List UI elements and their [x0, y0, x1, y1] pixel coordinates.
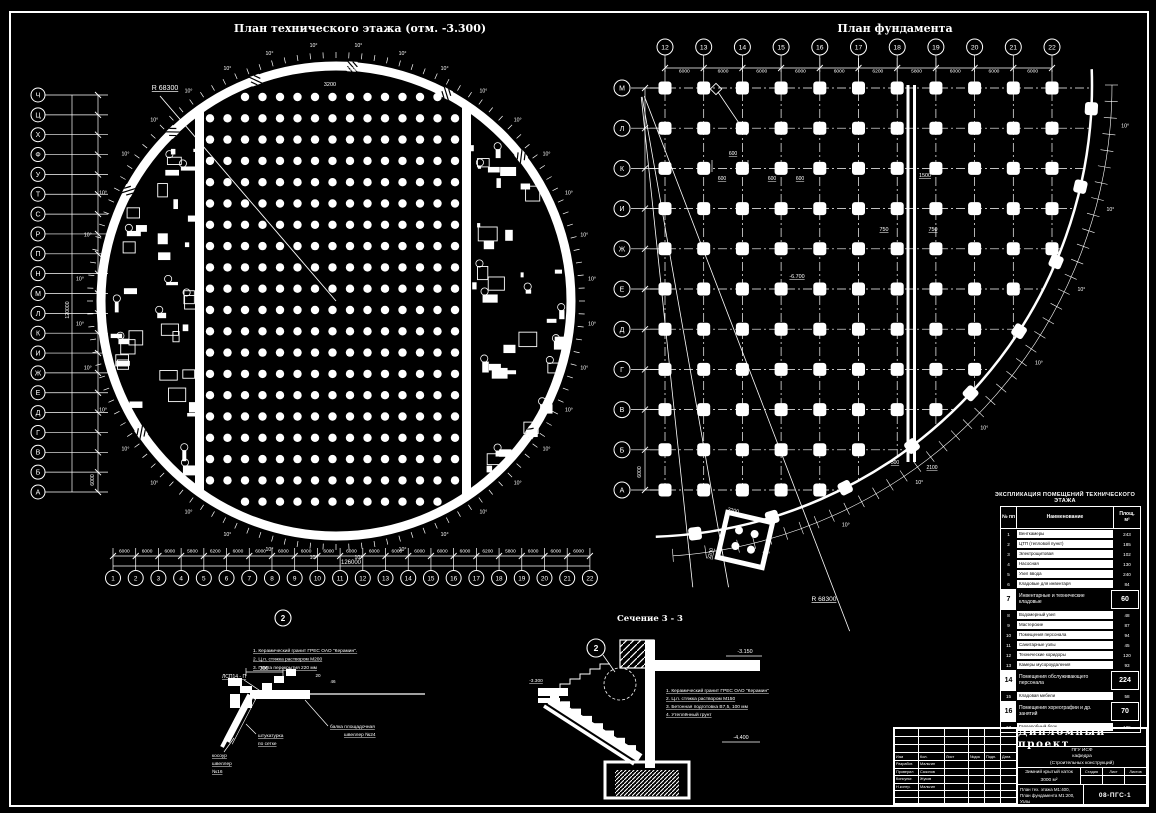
tb-sign-cell [969, 784, 985, 792]
svg-text:Ж: Ж [35, 370, 42, 377]
spec-row-2: 2ЦТП (тепловой пункт)185 [1001, 539, 1140, 549]
spec-row-12: 12Технические коридоры120 [1001, 650, 1140, 660]
pile-cap-detail [717, 512, 772, 567]
svg-text:10°: 10° [185, 88, 193, 94]
svg-text:12: 12 [661, 45, 669, 52]
tb-sign-cell [945, 737, 969, 745]
tb-sign-cell: Подп. [985, 753, 1001, 761]
stage-col: Стадия [1081, 768, 1103, 775]
svg-text:600: 600 [768, 176, 777, 182]
svg-text:19: 19 [518, 576, 526, 583]
tb-sign-cell [969, 761, 985, 769]
svg-text:5: 5 [202, 576, 206, 583]
tb-sign-cell: Лист [945, 753, 969, 761]
svg-text:10°: 10° [588, 277, 596, 283]
svg-text:10°: 10° [479, 88, 487, 94]
spec-row-16: 16Помещения хореографии и др. занятий70 [1001, 701, 1140, 722]
svg-text:10°: 10° [76, 277, 84, 283]
tb-sign-cell [969, 737, 985, 745]
spec-row-6: 6Кладовые для инвентаря84 [1001, 579, 1140, 589]
svg-text:R 68300: R 68300 [812, 596, 837, 603]
svg-text:Г: Г [620, 367, 624, 374]
svg-text:Р: Р [36, 231, 41, 238]
svg-text:3200: 3200 [346, 67, 358, 73]
node-detail-2: 1. Керамический гранит ГРЕС ОАО "Керамин… [212, 647, 425, 775]
svg-text:20: 20 [971, 45, 979, 52]
svg-text:2: 2 [134, 576, 138, 583]
svg-text:10°: 10° [543, 446, 551, 452]
svg-text:6000: 6000 [756, 69, 767, 75]
svg-text:6000: 6000 [392, 549, 403, 555]
tb-sign-cell: Н.контр. [895, 784, 919, 792]
svg-text:5800: 5800 [187, 549, 198, 555]
spec-col-name: Наименование [1017, 507, 1114, 528]
svg-text:10°: 10° [354, 43, 362, 49]
tb-sign-cell [895, 745, 919, 753]
svg-text:7: 7 [247, 576, 251, 583]
svg-text:18: 18 [496, 576, 504, 583]
svg-text:10°: 10° [479, 510, 487, 516]
left-plan-rooms [111, 143, 569, 476]
svg-text:17: 17 [855, 45, 863, 52]
svg-text:10°: 10° [565, 408, 573, 414]
tb-sign-cell: Мальгин [919, 784, 945, 792]
svg-text:Е: Е [36, 390, 41, 397]
svg-text:10°: 10° [514, 481, 522, 487]
svg-text:10°: 10° [150, 481, 158, 487]
spec-row-14: 14Помещения обслуживающего персонала224 [1001, 670, 1140, 691]
tb-sign-cell: Разработ. [895, 761, 919, 769]
svg-text:швеллер: швеллер [212, 762, 232, 767]
tb-sign-cell [919, 737, 945, 745]
tb-sign-cell [969, 729, 985, 737]
svg-text:20: 20 [315, 673, 321, 678]
svg-text:2. Ц.п. стяжка раствором М150: 2. Ц.п. стяжка раствором М150 [666, 696, 735, 702]
svg-text:10°: 10° [223, 66, 231, 72]
svg-text:10°: 10° [842, 522, 850, 528]
svg-text:10°: 10° [122, 446, 130, 452]
spec-table: № пп Наименование Площ. м² 1Венткамеры24… [1000, 506, 1141, 733]
svg-text:10°: 10° [514, 117, 522, 123]
svg-text:Д: Д [620, 327, 625, 334]
svg-text:6000: 6000 [834, 69, 845, 75]
tb-sign-cell [985, 769, 1001, 777]
svg-text:Ж: Ж [619, 246, 626, 253]
svg-text:10: 10 [314, 576, 322, 583]
spec-row-10: 10Помещения персонала94 [1001, 630, 1140, 640]
tb-sign-cell [1001, 729, 1017, 737]
spec-table-rows: 1Венткамеры2432ЦТП (тепловой пункт)1853Э… [1001, 529, 1140, 732]
svg-text:500: 500 [891, 460, 900, 466]
svg-text:10°: 10° [150, 117, 158, 123]
svg-text:20: 20 [541, 576, 549, 583]
svg-text:Л: Л [620, 126, 625, 133]
svg-text:3200: 3200 [707, 547, 715, 560]
svg-text:13: 13 [382, 576, 390, 583]
tb-sign-cell [985, 729, 1001, 737]
right-plan-row-axes: МЛКИЖЕДГВБА6000 [614, 80, 660, 498]
svg-text:6200: 6200 [482, 549, 493, 555]
svg-text:6000: 6000 [119, 549, 130, 555]
object-name: Зимний крытый каток3000 м² [1018, 768, 1081, 783]
svg-text:10°: 10° [1035, 360, 1043, 366]
svg-text:10°: 10° [310, 43, 318, 49]
tb-sign-cell: Консульт. [895, 776, 919, 784]
svg-text:6000: 6000 [164, 549, 175, 555]
svg-text:Ч: Ч [36, 92, 41, 99]
svg-text:6000: 6000 [323, 549, 334, 555]
svg-text:R 68300: R 68300 [152, 85, 179, 92]
spec-row-9: 9Мастерские87 [1001, 620, 1140, 630]
svg-text:6000: 6000 [989, 69, 1000, 75]
tb-sign-cell [1001, 761, 1017, 769]
svg-text:-3.150: -3.150 [737, 649, 752, 655]
svg-text:10°: 10° [399, 51, 407, 57]
spec-row-11: 11Санитарные узлы45 [1001, 640, 1140, 650]
left-plan-column-dots [206, 93, 459, 506]
svg-text:10°: 10° [565, 190, 573, 196]
tb-sign-cell [945, 745, 969, 753]
tb-sign-cell [1001, 769, 1017, 777]
tb-sign-cell: Сазонов [919, 769, 945, 777]
svg-text:46: 46 [330, 679, 336, 684]
tb-sign-cell [945, 798, 969, 805]
svg-text:2: 2 [281, 614, 286, 623]
svg-text:6200: 6200 [210, 549, 221, 555]
svg-text:-4.400: -4.400 [733, 735, 748, 741]
left-plan-row-axes: ЧЦХФУТСРПНМЛКИЖЕДГВБА6000120000 [31, 88, 108, 499]
svg-text:косоур: косоур [212, 754, 227, 759]
svg-text:-6.700: -6.700 [789, 274, 804, 280]
svg-text:10°: 10° [441, 66, 449, 72]
svg-text:10°: 10° [588, 321, 596, 327]
spec-row-7: 7Инвентарные и технические кладовые60 [1001, 589, 1140, 610]
svg-text:18: 18 [893, 45, 901, 52]
project-title: Дипломный проект [1018, 729, 1146, 747]
tb-sign-cell [1001, 776, 1017, 784]
svg-text:10°: 10° [266, 51, 274, 57]
tb-sign-cell [985, 761, 1001, 769]
spec-row-15: 15Кладовая мебели58 [1001, 691, 1140, 701]
tb-sign-cell [919, 729, 945, 737]
sheet-title: План тех. этажа М1:400,План фундамента М… [1018, 785, 1084, 805]
svg-text:300: 300 [260, 666, 269, 672]
svg-text:6200: 6200 [872, 69, 883, 75]
svg-text:6000: 6000 [528, 549, 539, 555]
spec-row-5: 5Узел ввода240 [1001, 569, 1140, 579]
svg-text:1. Керамический гранит ГРЕС ОА: 1. Керамический гранит ГРЕС ОАО "Керамин… [253, 647, 357, 654]
svg-text:Х: Х [36, 132, 41, 139]
svg-text:Т: Т [36, 192, 41, 199]
svg-text:6000: 6000 [637, 466, 643, 478]
title-block-signature-grid: ИзмКол.Лист№докПодп.ДатаРазработ.Мальгин… [895, 729, 1018, 804]
document-code: 08-ПГС-1 [1084, 785, 1146, 805]
svg-text:10°: 10° [1121, 123, 1129, 129]
tb-sign-cell [1001, 784, 1017, 792]
svg-text:3: 3 [157, 576, 161, 583]
svg-text:Н: Н [35, 271, 40, 278]
cad-drawing-canvas: План технического этажа (отм. -3.300)10°… [0, 0, 1156, 813]
svg-text:А: А [620, 488, 625, 495]
tb-sign-cell [1001, 798, 1017, 805]
tb-sign-cell: Дата [1001, 753, 1017, 761]
spec-col-num: № пп [1001, 507, 1017, 528]
title-block-mid: Зимний крытый каток3000 м² СтадияЛистЛис… [1018, 768, 1146, 784]
svg-text:4: 4 [179, 576, 183, 583]
stage-block: СтадияЛистЛистов [1081, 768, 1146, 783]
tb-sign-cell: Мальгин [919, 761, 945, 769]
svg-text:6000: 6000 [437, 549, 448, 555]
svg-text:№16: №16 [212, 769, 223, 775]
svg-text:10°: 10° [1106, 207, 1114, 213]
tb-sign-cell [985, 737, 1001, 745]
svg-text:6000: 6000 [90, 474, 96, 486]
svg-text:штукатурка: штукатурка [258, 734, 284, 739]
left-plan-col-axes: 1234567891011121314151617181920212260006… [106, 548, 598, 586]
svg-text:10°: 10° [84, 232, 92, 238]
svg-text:6000: 6000 [233, 549, 244, 555]
svg-text:Л: Л [36, 311, 41, 318]
svg-text:Ф: Ф [35, 152, 40, 159]
svg-text:10°: 10° [223, 532, 231, 538]
svg-text:М: М [619, 86, 625, 93]
tb-sign-cell [895, 737, 919, 745]
svg-text:балка площадочная: балка площадочная [330, 724, 375, 730]
stage-body [1081, 776, 1146, 784]
spec-table-header: № пп Наименование Площ. м² [1001, 507, 1140, 529]
svg-text:10°: 10° [580, 232, 588, 238]
svg-text:6000: 6000 [414, 549, 425, 555]
svg-text:10°: 10° [99, 190, 107, 196]
svg-text:С: С [35, 212, 40, 219]
tb-sign-cell: №док [969, 753, 985, 761]
tb-sign-cell [919, 745, 945, 753]
tb-sign-cell [945, 769, 969, 777]
tb-sign-cell [985, 798, 1001, 805]
svg-text:1: 1 [111, 576, 115, 583]
svg-text:10°: 10° [580, 366, 588, 372]
svg-text:Д: Д [36, 410, 41, 417]
svg-text:750: 750 [880, 227, 889, 233]
tb-sign-cell [985, 745, 1001, 753]
svg-text:600: 600 [796, 176, 805, 182]
svg-text:8: 8 [270, 576, 274, 583]
svg-text:К: К [620, 166, 625, 173]
tb-sign-cell [1001, 737, 1017, 745]
svg-text:6000: 6000 [950, 69, 961, 75]
svg-text:П: П [35, 251, 40, 258]
svg-text:10°: 10° [915, 480, 923, 486]
svg-text:17: 17 [473, 576, 481, 583]
svg-text:600: 600 [729, 151, 738, 157]
svg-text:12: 12 [359, 576, 367, 583]
spec-row-3: 3Электрощитовая102 [1001, 549, 1140, 559]
svg-text:Сечение 3 - 3: Сечение 3 - 3 [617, 614, 683, 624]
svg-text:10°: 10° [980, 425, 988, 431]
organization: ПГУ ИСФкафедра(Строительных конструкций) [1018, 747, 1146, 768]
right-plan-grid [650, 58, 1092, 495]
stage-col: Листов [1125, 768, 1146, 775]
svg-text:15: 15 [427, 576, 435, 583]
stage-col: Лист [1103, 768, 1125, 775]
svg-text:Ц: Ц [35, 112, 41, 119]
svg-text:10°: 10° [76, 321, 84, 327]
svg-text:по сетке: по сетке [258, 742, 277, 747]
svg-text:План фундамента: План фундамента [837, 22, 952, 35]
stage-header: СтадияЛистЛистов [1081, 768, 1146, 776]
svg-text:3. Бетонная подготовка В7,5, 1: 3. Бетонная подготовка В7,5, 100 мм [666, 704, 748, 710]
svg-text:Б: Б [620, 447, 625, 454]
svg-text:6000: 6000 [551, 549, 562, 555]
tb-sign-cell: Изм [895, 753, 919, 761]
svg-text:Г: Г [36, 430, 40, 437]
svg-text:Е: Е [620, 287, 625, 294]
spec-row-8: 8Водомерный узел48 [1001, 610, 1140, 620]
svg-text:М: М [35, 291, 41, 298]
tb-sign-cell [969, 745, 985, 753]
svg-text:22: 22 [1048, 45, 1056, 52]
svg-text:В: В [36, 450, 41, 457]
svg-text:6000: 6000 [346, 549, 357, 555]
tb-sign-cell [945, 761, 969, 769]
svg-text:10°: 10° [1077, 287, 1085, 293]
svg-text:3200: 3200 [324, 82, 336, 88]
svg-text:22: 22 [586, 576, 594, 583]
tb-sign-cell [945, 729, 969, 737]
svg-text:И: И [619, 206, 624, 213]
tb-sign-cell [969, 798, 985, 805]
svg-text:4. Утеплённый грунт: 4. Утеплённый грунт [666, 711, 712, 718]
svg-text:6000: 6000 [718, 69, 729, 75]
svg-text:швеллер №24: швеллер №24 [344, 732, 376, 738]
spec-table-title: ЭКСПЛИКАЦИЯ ПОМЕЩЕНИЙ ТЕХНИЧЕСКОГО ЭТАЖА [984, 492, 1146, 504]
svg-text:126000: 126000 [341, 560, 362, 566]
svg-text:2. Ц.п. стяжка раствором М200: 2. Ц.п. стяжка раствором М200 [253, 657, 322, 663]
svg-text:120000: 120000 [65, 301, 71, 318]
svg-text:6000: 6000 [679, 69, 690, 75]
svg-text:2: 2 [594, 643, 599, 653]
svg-text:10°: 10° [185, 510, 193, 516]
section-3-3: Сечение 3 - 3-3.150-4.400-3.30021. Керам… [529, 614, 769, 798]
tb-sign-cell [945, 784, 969, 792]
tb-sign-cell [969, 776, 985, 784]
tb-sign-cell: Проверил [895, 769, 919, 777]
right-plan-col-axes: 1213141516171819202122600060006000600060… [657, 39, 1060, 75]
svg-text:6000: 6000 [1027, 69, 1038, 75]
tb-sign-cell [1001, 745, 1017, 753]
svg-text:6000: 6000 [460, 549, 471, 555]
svg-text:600: 600 [718, 176, 727, 182]
spec-row-1: 1Венткамеры243 [1001, 529, 1140, 539]
svg-text:К: К [36, 331, 41, 338]
title-block-bottom: План тех. этажа М1:400,План фундамента М… [1018, 785, 1146, 805]
svg-text:16: 16 [816, 45, 824, 52]
svg-text:6000: 6000 [142, 549, 153, 555]
svg-text:ЛСП14 - П: ЛСП14 - П [222, 674, 246, 680]
tb-sign-cell [945, 776, 969, 784]
svg-text:16: 16 [450, 576, 458, 583]
svg-text:13: 13 [700, 45, 708, 52]
svg-text:У: У [36, 172, 41, 179]
tb-sign-cell [985, 784, 1001, 792]
svg-text:6000: 6000 [301, 549, 312, 555]
svg-text:1. Керамический гранит ГРЕС ОА: 1. Керамический гранит ГРЕС ОАО "Керамин… [666, 687, 769, 694]
svg-text:6000: 6000 [573, 549, 584, 555]
tb-sign-cell [919, 798, 945, 805]
svg-text:В: В [620, 407, 625, 414]
svg-text:Б: Б [36, 470, 41, 477]
svg-text:6000: 6000 [795, 69, 806, 75]
svg-text:6000: 6000 [369, 549, 380, 555]
svg-text:План технического этажа (отм.: План технического этажа (отм. -3.300) [234, 22, 486, 35]
svg-text:10°: 10° [122, 152, 130, 158]
svg-text:6000: 6000 [255, 549, 266, 555]
svg-text:1500: 1500 [919, 173, 931, 179]
svg-text:21: 21 [1010, 45, 1018, 52]
svg-text:5800: 5800 [505, 549, 516, 555]
svg-text:10°: 10° [543, 152, 551, 158]
drawing-sheet: План технического этажа (отм. -3.300)10°… [0, 0, 1156, 813]
svg-text:14: 14 [405, 576, 413, 583]
tb-sign-cell: Кол. [919, 753, 945, 761]
svg-text:А: А [36, 489, 41, 496]
spec-col-area: Площ. м² [1114, 507, 1140, 528]
svg-text:11: 11 [337, 576, 344, 583]
svg-text:10°: 10° [441, 532, 449, 538]
tb-sign-cell [985, 776, 1001, 784]
title-block: ИзмКол.Лист№докПодп.ДатаРазработ.Мальгин… [893, 727, 1148, 806]
spec-row-4: 4Насосная130 [1001, 559, 1140, 569]
svg-text:6000: 6000 [278, 549, 289, 555]
svg-text:И: И [35, 350, 40, 357]
tb-sign-cell [895, 729, 919, 737]
svg-text:6: 6 [225, 576, 229, 583]
tb-sign-cell [895, 798, 919, 805]
svg-text:14: 14 [739, 45, 747, 52]
svg-text:2100: 2100 [926, 465, 937, 471]
svg-text:10°: 10° [84, 366, 92, 372]
detail-callout-2: 2 [275, 610, 291, 626]
tb-sign-cell: Жуков [919, 776, 945, 784]
spec-row-13: 13Камеры мусороудаления93 [1001, 660, 1140, 670]
title-block-main: Дипломный проект ПГУ ИСФкафедра(Строител… [1018, 729, 1146, 804]
tb-sign-cell [969, 769, 985, 777]
svg-text:5800: 5800 [911, 69, 922, 75]
svg-text:15: 15 [777, 45, 785, 52]
svg-text:21: 21 [564, 576, 572, 583]
svg-text:-3.300: -3.300 [529, 678, 543, 684]
svg-text:19: 19 [932, 45, 940, 52]
svg-text:9: 9 [293, 576, 297, 583]
